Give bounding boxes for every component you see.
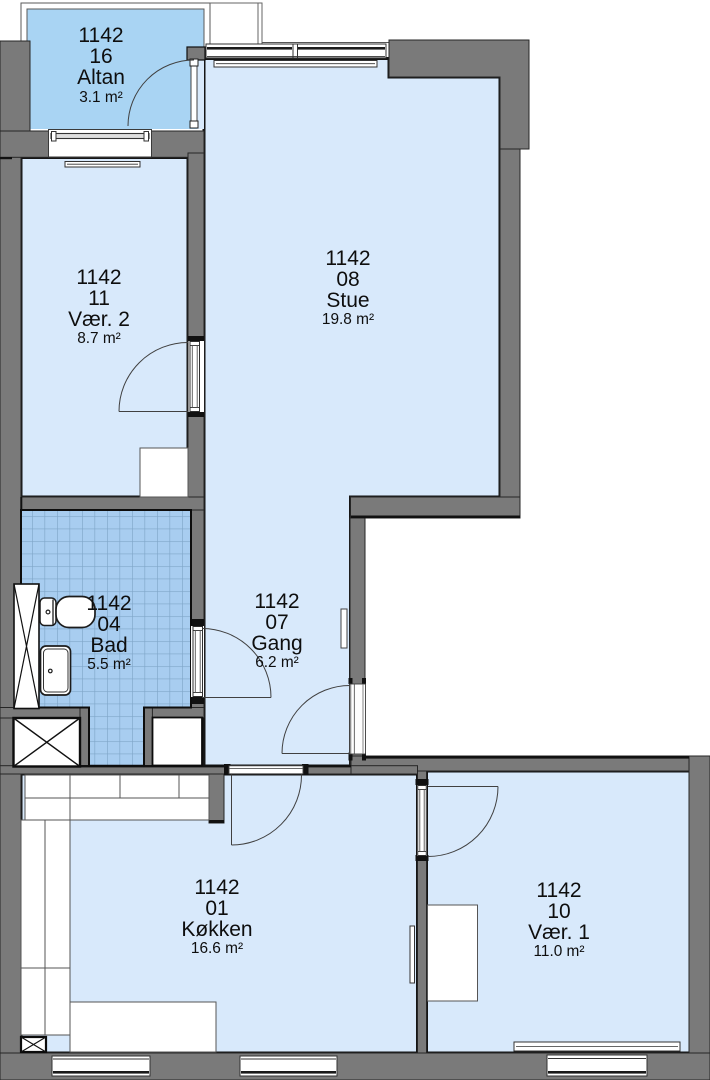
svg-text:16: 16 <box>89 45 112 68</box>
svg-text:1142: 1142 <box>536 879 581 902</box>
svg-text:6.2 m²: 6.2 m² <box>255 654 299 671</box>
svg-text:1142: 1142 <box>78 24 123 47</box>
svg-text:07: 07 <box>265 611 288 634</box>
svg-text:Vær. 1: Vær. 1 <box>528 921 590 944</box>
svg-text:5.5 m²: 5.5 m² <box>87 656 131 673</box>
svg-text:1142: 1142 <box>86 592 131 615</box>
svg-text:1142: 1142 <box>76 266 121 289</box>
svg-text:Vær. 2: Vær. 2 <box>68 308 130 331</box>
svg-text:Gang: Gang <box>251 632 302 655</box>
svg-text:Køkken: Køkken <box>181 918 252 941</box>
svg-text:8.7 m²: 8.7 m² <box>77 330 121 347</box>
svg-text:Stue: Stue <box>326 289 369 312</box>
svg-text:04: 04 <box>97 613 121 636</box>
svg-text:1142: 1142 <box>194 876 239 899</box>
svg-text:19.8 m²: 19.8 m² <box>322 311 374 328</box>
svg-text:01: 01 <box>205 897 228 920</box>
svg-text:3.1 m²: 3.1 m² <box>79 89 123 106</box>
svg-text:10: 10 <box>547 900 570 923</box>
svg-text:16.6 m²: 16.6 m² <box>191 940 243 957</box>
svg-text:08: 08 <box>336 268 359 291</box>
svg-text:Altan: Altan <box>77 66 125 89</box>
svg-text:1142: 1142 <box>325 247 370 270</box>
svg-text:1142: 1142 <box>254 590 299 613</box>
svg-text:Bad: Bad <box>90 634 127 657</box>
svg-text:11.0 m²: 11.0 m² <box>533 943 584 960</box>
svg-text:11: 11 <box>88 287 110 310</box>
